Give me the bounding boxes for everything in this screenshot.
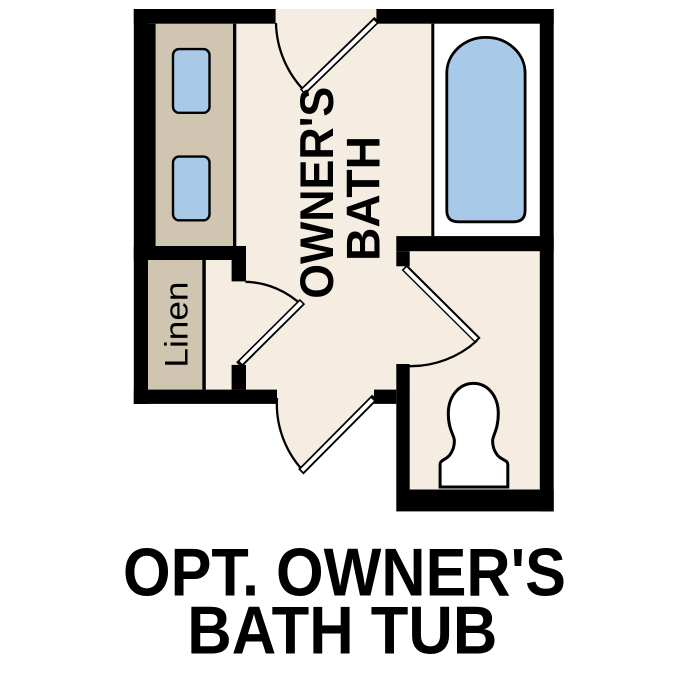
svg-text:BATH TUB: BATH TUB <box>187 593 497 669</box>
svg-text:Linen: Linen <box>159 282 195 368</box>
svg-text:OWNER'S: OWNER'S <box>290 87 343 299</box>
svg-text:BATH: BATH <box>337 136 390 261</box>
